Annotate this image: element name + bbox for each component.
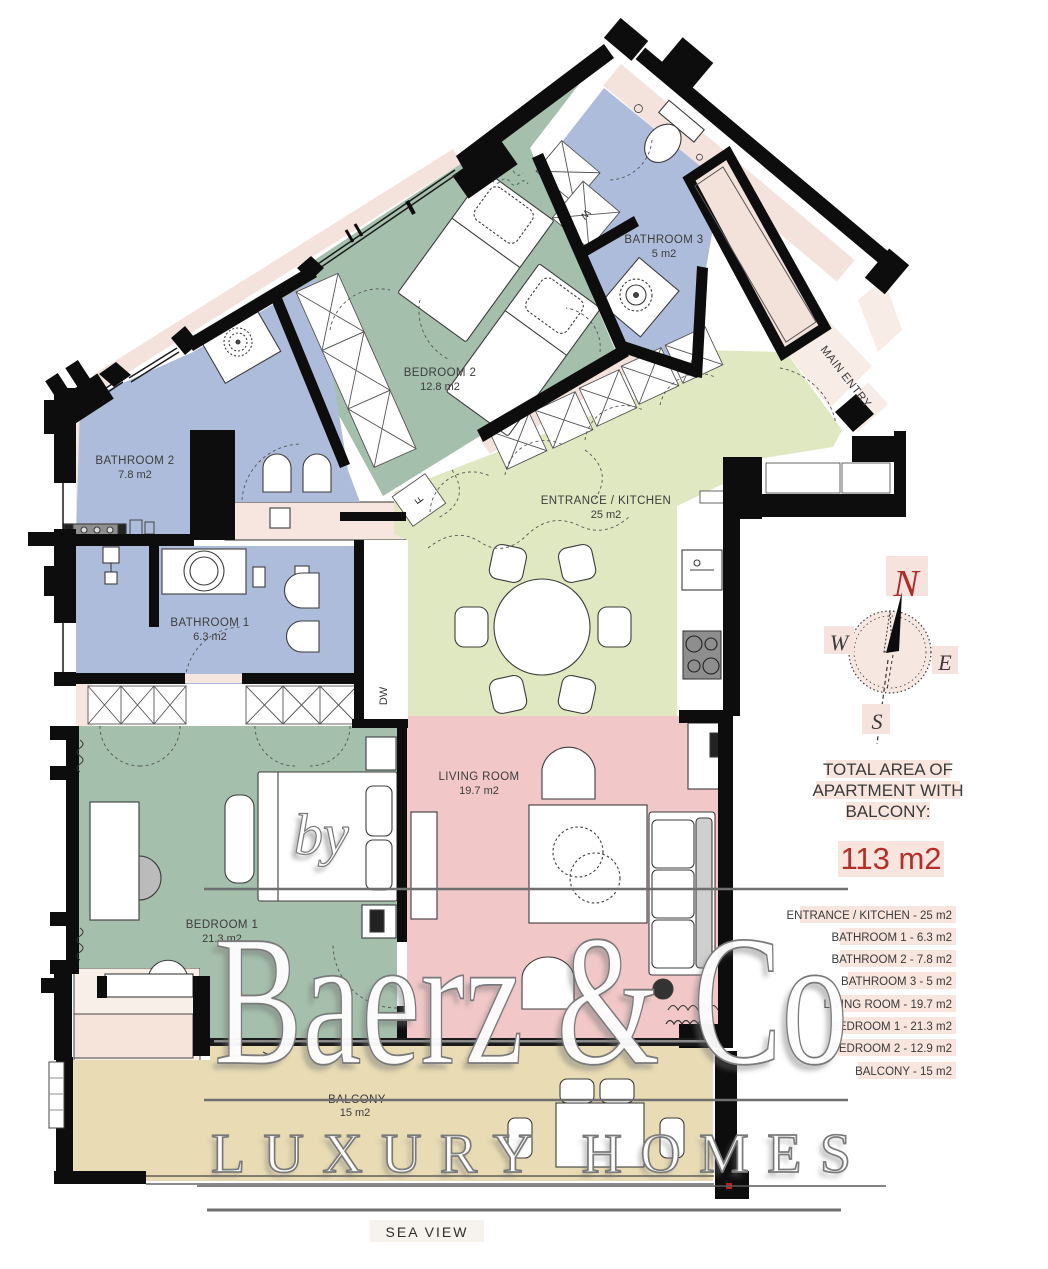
svg-text:DW: DW (378, 686, 390, 705)
svg-text:BATHROOM 3 - 5 m2: BATHROOM 3 - 5 m2 (841, 976, 952, 988)
svg-text:BATHROOM 1: BATHROOM 1 (170, 617, 249, 629)
svg-text:by: by (294, 802, 349, 867)
svg-text:ENTRANCE / KITCHEN: ENTRANCE / KITCHEN (541, 495, 672, 507)
svg-text:BATHROOM 2: BATHROOM 2 (95, 455, 174, 467)
svg-text:6.3 m2: 6.3 m2 (193, 631, 227, 643)
svg-text:N: N (892, 563, 921, 605)
svg-text:BATHROOM 2 - 7.8 m2: BATHROOM 2 - 7.8 m2 (831, 954, 952, 966)
svg-text:113 m2: 113 m2 (840, 841, 941, 876)
svg-text:SEA VIEW: SEA VIEW (386, 1224, 469, 1240)
svg-text:5 m2: 5 m2 (652, 248, 676, 260)
svg-text:BALCONY - 15 m2: BALCONY - 15 m2 (855, 1066, 952, 1078)
svg-text:E: E (937, 650, 952, 675)
svg-text:BEDROOM 2 - 12.9 m2: BEDROOM 2 - 12.9 m2 (831, 1043, 952, 1055)
svg-text:TOTAL AREA OF: TOTAL AREA OF (823, 760, 953, 779)
svg-text:25 m2: 25 m2 (591, 509, 622, 521)
svg-text:Baerz & Co: Baerz & Co (214, 898, 848, 1104)
svg-text:19.7 m2: 19.7 m2 (459, 785, 499, 797)
svg-text:BEDROOM 1 - 21.3 m2: BEDROOM 1 - 21.3 m2 (831, 1021, 952, 1033)
svg-text:BALCONY:: BALCONY: (845, 802, 930, 821)
svg-text:S: S (872, 709, 883, 734)
svg-text:BATHROOM 1 - 6.3 m2: BATHROOM 1 - 6.3 m2 (831, 932, 952, 944)
svg-text:7.8 m2: 7.8 m2 (118, 469, 152, 481)
svg-text:BEDROOM 2: BEDROOM 2 (404, 367, 477, 379)
svg-text:BATHROOM 3: BATHROOM 3 (624, 234, 703, 246)
svg-text:LIVING ROOM: LIVING ROOM (438, 771, 519, 783)
svg-text:12.8 m2: 12.8 m2 (420, 381, 460, 393)
svg-text:W: W (830, 630, 850, 655)
svg-text:APARTMENT WITH: APARTMENT WITH (812, 781, 963, 800)
